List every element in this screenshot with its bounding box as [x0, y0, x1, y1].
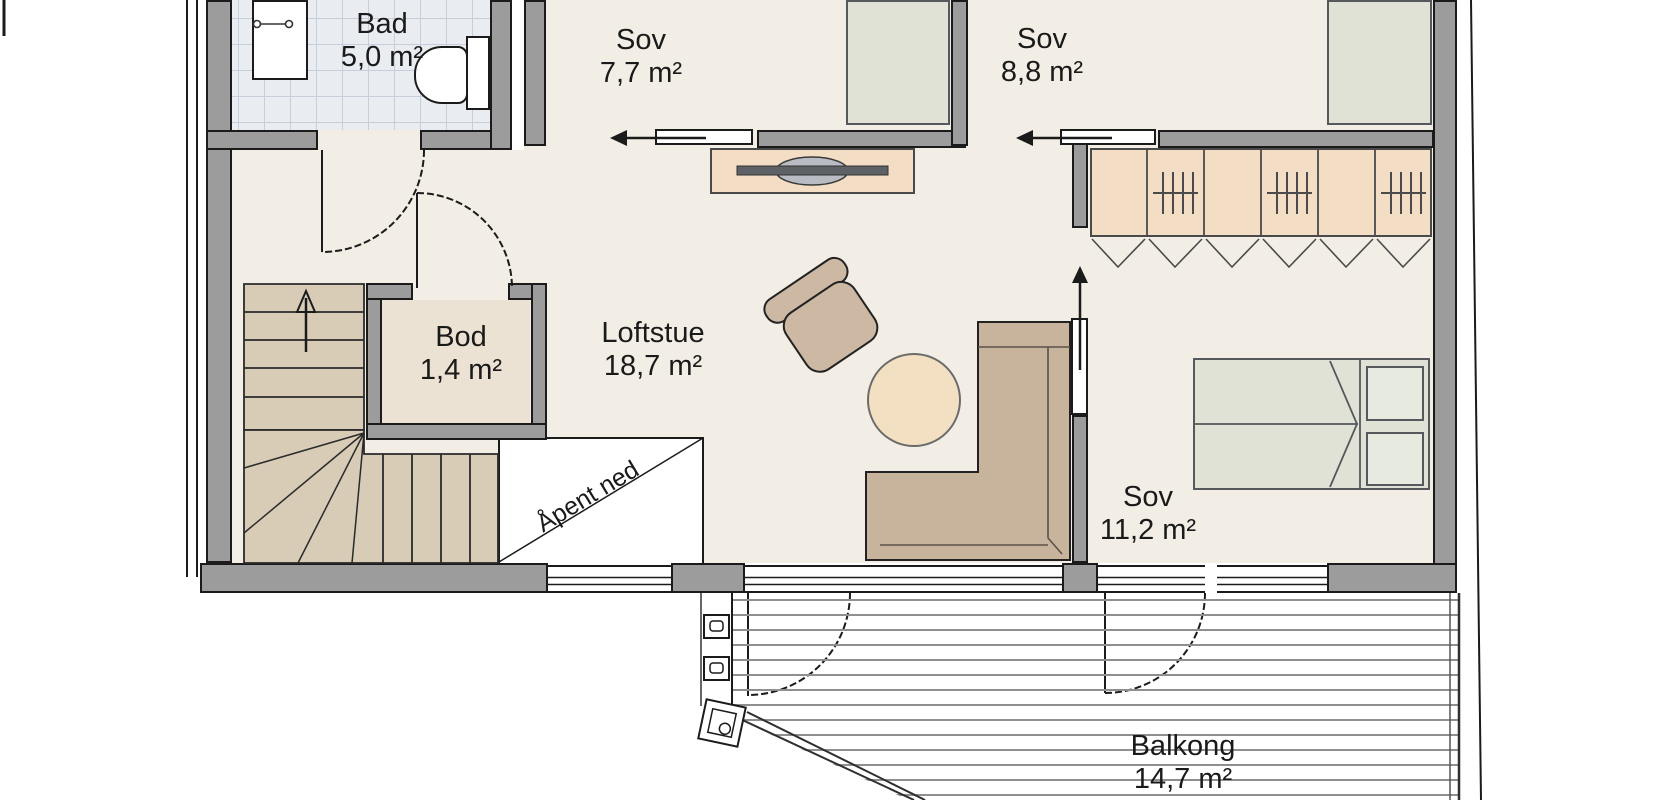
wall-bottom-east [1327, 563, 1457, 593]
door-swing-arc-balcony-2 [1105, 593, 1205, 693]
room-name: Balkong [1131, 730, 1236, 763]
wall-bod-right [531, 283, 547, 440]
balcony-deck [698, 593, 1459, 800]
wall-gap [512, 0, 524, 150]
balcony-railing-diagonal [736, 712, 925, 800]
floor-plan-canvas: Bad 5,0 m² Sov 7,7 m² Sov 8,8 m² Bod 1,4… [0, 0, 1670, 800]
sliding-door-leaf-sov3 [1071, 318, 1088, 415]
balcony-post [704, 615, 729, 638]
room-area: 5,0 m² [341, 41, 423, 74]
room-name: Sov [600, 24, 682, 57]
room-name: Bad [341, 8, 423, 41]
wall-partition-stub [1072, 143, 1088, 228]
wall-sov2-bottom [1158, 130, 1434, 148]
sliding-door-leaf-sov2 [1060, 129, 1156, 145]
wall-sov1-left [524, 0, 546, 146]
bed-sov-7-7 [846, 0, 950, 125]
room-label-bad: Bad 5,0 m² [341, 8, 423, 74]
wall-partition-lower [1072, 415, 1088, 563]
pillow [1366, 432, 1424, 486]
room-area: 14,7 m² [1131, 763, 1236, 796]
wall-bod-top-left [366, 283, 413, 300]
wall-bod-left [366, 283, 382, 440]
deck-plank-lines [732, 600, 1459, 795]
bathtub [252, 0, 308, 80]
balcony-corner-post [698, 699, 745, 746]
room-label-balkong: Balkong 14,7 m² [1131, 730, 1236, 796]
wall-bottom-partition-block [1062, 563, 1098, 593]
room-area: 11,2 m² [1100, 514, 1196, 547]
wall-sov1-sov2-partition [951, 0, 968, 146]
toilet-tank [466, 36, 490, 110]
balcony-post [704, 657, 729, 680]
wall-right-outer [1433, 0, 1457, 593]
room-area: 1,4 m² [420, 354, 502, 387]
wall-top-middle [757, 130, 966, 148]
room-name: Sov [1001, 23, 1083, 56]
wardrobe-row [1090, 148, 1432, 237]
wall-bottom-pier [671, 563, 745, 593]
tv-sideboard [710, 148, 915, 194]
door-swing-arc-balcony-1 [748, 593, 850, 696]
wall-bottom-west [200, 563, 548, 593]
window-void [548, 565, 671, 593]
room-label-sov-1: Sov 7,7 m² [600, 24, 682, 90]
room-name: Loftstue [601, 317, 704, 350]
room-area: 18,7 m² [601, 350, 704, 383]
bed-sov-8-8 [1327, 0, 1432, 125]
room-name: Sov [1100, 481, 1196, 514]
pillow [1366, 366, 1424, 421]
wall-bad-right [490, 0, 512, 150]
window-sov3 [1217, 565, 1327, 593]
balcony-door1-threshold [745, 565, 852, 593]
room-area: 8,8 m² [1001, 56, 1083, 89]
wall-bod-bottom [366, 423, 547, 440]
room-label-sov-2: Sov 8,8 m² [1001, 23, 1083, 89]
room-name: Bod [420, 321, 502, 354]
room-label-sov-3: Sov 11,2 m² [1100, 481, 1196, 547]
balcony-door2-threshold [1098, 565, 1205, 593]
room-label-bod: Bod 1,4 m² [420, 321, 502, 387]
window-loftstue [852, 565, 1062, 593]
wall-bad-bottom-left [206, 130, 318, 150]
room-area: 7,7 m² [600, 57, 682, 90]
room-label-loftstue: Loftstue 18,7 m² [601, 317, 704, 383]
sliding-door-leaf-sov1 [655, 129, 753, 145]
wall-left-outer [206, 0, 232, 563]
